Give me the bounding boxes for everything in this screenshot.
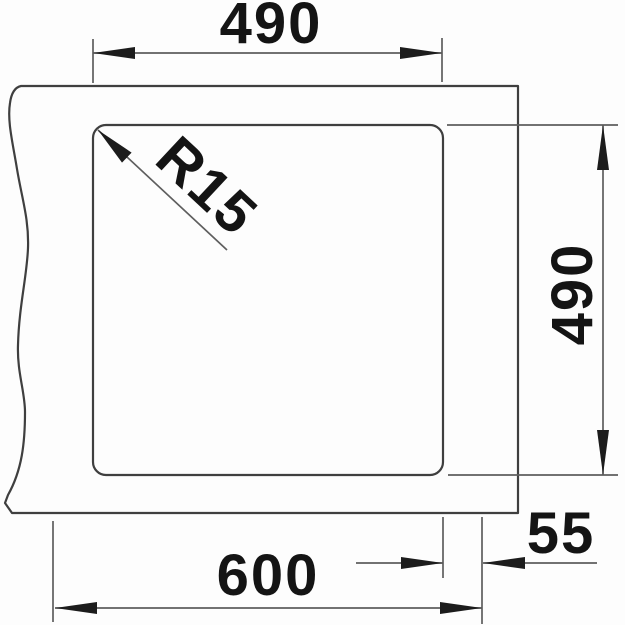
dimension-top-width: 490 [93,0,442,83]
arrow-down-icon [597,430,609,475]
arrow-left-icon [55,602,97,614]
dimension-side-depth: 490 [447,125,618,475]
sink-bowl-outline [93,125,443,475]
arrow-left-icon [483,557,525,569]
top-width-label: 490 [220,0,323,56]
dimension-overall-width: 600 [53,521,482,622]
arrow-right-icon [401,557,443,569]
arrow-right-icon [440,602,482,614]
dimension-corner-radius: R15 [98,124,270,250]
edge-offset-label: 55 [527,501,596,566]
corner-radius-label: R15 [144,124,271,248]
drawing-svg: 490 R15 490 55 [0,0,625,625]
side-depth-label: 490 [540,243,605,346]
arrow-right-icon [400,47,442,59]
countertop-outline [5,86,518,513]
arrow-left-icon [93,47,135,59]
arrow-diagonal-icon [98,130,132,163]
overall-width-label: 600 [217,543,320,608]
arrow-up-icon [597,125,609,170]
technical-drawing: 490 R15 490 55 [0,0,625,625]
dimension-edge-offset: 55 [356,501,597,624]
